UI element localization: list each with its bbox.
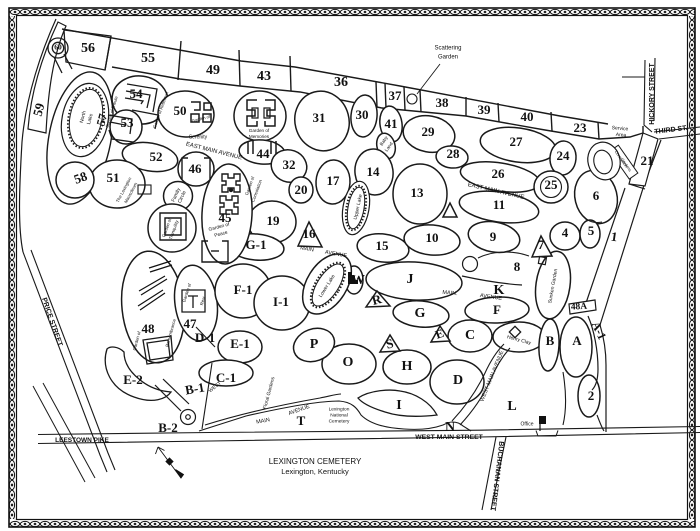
svg-text:8: 8 (514, 259, 521, 274)
svg-text:7: 7 (538, 237, 545, 252)
svg-text:13: 13 (411, 185, 425, 200)
svg-text:23: 23 (574, 120, 588, 135)
svg-text:48: 48 (142, 321, 156, 336)
svg-text:27: 27 (510, 134, 524, 149)
svg-text:36: 36 (334, 75, 348, 90)
svg-text:19: 19 (267, 213, 281, 228)
svg-text:Memories: Memories (249, 134, 270, 139)
svg-text:10: 10 (426, 230, 439, 245)
svg-text:39: 39 (478, 102, 492, 117)
svg-text:D-1: D-1 (195, 330, 215, 345)
svg-text:2: 2 (588, 388, 595, 403)
svg-text:G: G (415, 306, 426, 321)
svg-text:11: 11 (493, 197, 505, 212)
svg-text:41: 41 (385, 116, 398, 131)
svg-text:40: 40 (521, 109, 534, 124)
svg-text:L: L (507, 399, 516, 414)
svg-text:26: 26 (492, 166, 506, 181)
svg-text:32: 32 (283, 157, 296, 172)
svg-text:LEXINGTON CEMETERY: LEXINGTON CEMETERY (269, 457, 362, 466)
svg-text:Garden: Garden (438, 55, 458, 61)
svg-text:National: National (330, 412, 348, 418)
svg-text:49: 49 (206, 63, 220, 78)
svg-text:60: 60 (54, 43, 62, 52)
svg-text:Cemetery: Cemetery (329, 418, 350, 424)
svg-text:46: 46 (189, 161, 203, 176)
svg-text:47: 47 (184, 316, 198, 331)
svg-text:21: 21 (641, 153, 654, 168)
svg-text:17: 17 (327, 173, 341, 188)
svg-text:H: H (402, 359, 413, 374)
svg-text:16: 16 (303, 226, 317, 241)
svg-text:4: 4 (562, 225, 569, 240)
svg-text:Scattering: Scattering (434, 46, 461, 52)
svg-text:LEESTOWN PIKE: LEESTOWN PIKE (55, 437, 109, 444)
svg-text:C: C (465, 328, 475, 343)
svg-text:50: 50 (174, 103, 187, 118)
svg-text:48A: 48A (571, 302, 588, 313)
svg-text:E-1: E-1 (230, 336, 250, 351)
svg-text:Office: Office (521, 421, 534, 427)
svg-text:O: O (343, 355, 354, 370)
svg-text:Serenity: Serenity (189, 134, 208, 140)
svg-text:24: 24 (557, 148, 571, 163)
svg-text:52: 52 (150, 149, 163, 164)
svg-text:44: 44 (257, 146, 271, 161)
svg-text:Lexington: Lexington (329, 406, 350, 412)
svg-text:W: W (351, 273, 365, 288)
svg-text:56: 56 (81, 41, 95, 56)
svg-text:D: D (453, 373, 463, 388)
svg-text:14: 14 (367, 164, 381, 179)
svg-text:T: T (297, 413, 306, 428)
svg-text:J: J (407, 272, 414, 287)
svg-text:G-1: G-1 (246, 237, 267, 252)
svg-text:Lexington, Kentucky: Lexington, Kentucky (281, 467, 349, 476)
svg-text:51: 51 (107, 170, 120, 185)
svg-text:I-1: I-1 (273, 294, 289, 309)
svg-text:Garden of: Garden of (249, 128, 270, 133)
svg-text:9: 9 (490, 229, 497, 244)
svg-text:30: 30 (356, 107, 369, 122)
svg-text:Area: Area (615, 132, 626, 139)
svg-text:I: I (396, 398, 401, 413)
svg-text:F: F (493, 302, 501, 317)
svg-text:25: 25 (545, 177, 559, 192)
svg-text:20: 20 (295, 182, 308, 197)
svg-text:31: 31 (313, 110, 326, 125)
svg-text:43: 43 (257, 69, 271, 84)
svg-text:P: P (310, 337, 319, 352)
svg-text:B-2: B-2 (158, 420, 178, 435)
svg-text:6: 6 (593, 188, 600, 203)
svg-text:15: 15 (376, 238, 390, 253)
svg-text:54: 54 (130, 86, 144, 101)
svg-text:37: 37 (389, 88, 403, 103)
svg-text:28: 28 (447, 146, 461, 161)
svg-text:5: 5 (588, 223, 595, 238)
svg-text:A: A (572, 333, 582, 348)
svg-text:53: 53 (121, 115, 135, 130)
svg-text:B: B (546, 333, 555, 348)
svg-text:F-1: F-1 (234, 282, 253, 297)
svg-text:E-2: E-2 (123, 372, 143, 387)
svg-text:29: 29 (422, 124, 436, 139)
svg-text:38: 38 (436, 95, 450, 110)
svg-text:WEST MAIN STREET: WEST MAIN STREET (415, 434, 483, 441)
svg-text:55: 55 (141, 51, 155, 66)
svg-text:HICKORY STREET: HICKORY STREET (649, 63, 656, 125)
